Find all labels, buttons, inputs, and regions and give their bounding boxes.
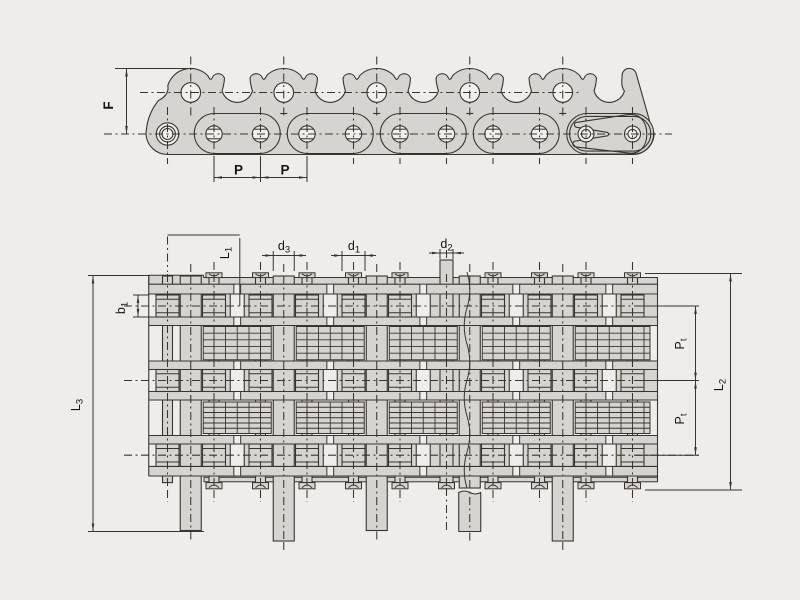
svg-text:P: P [280, 163, 289, 178]
svg-text:F: F [101, 101, 116, 109]
svg-text:P: P [234, 163, 243, 178]
